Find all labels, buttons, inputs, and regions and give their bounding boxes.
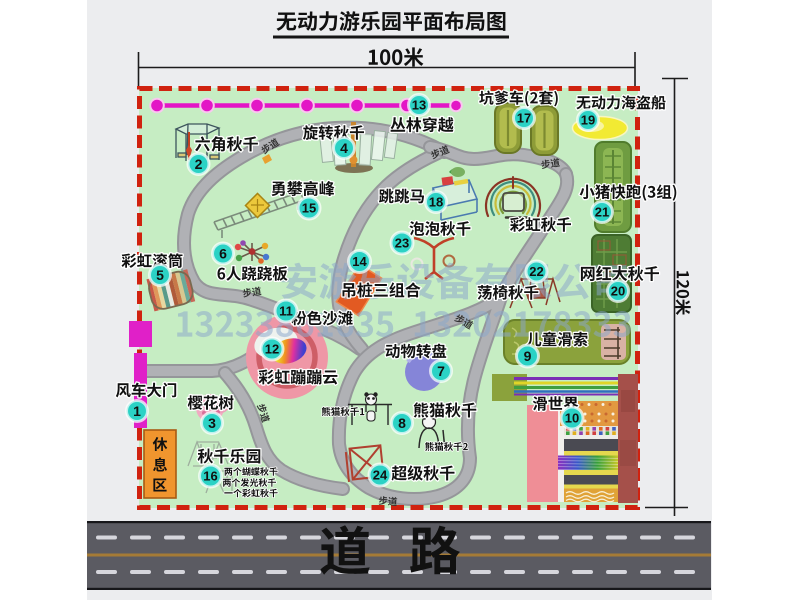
svg-text:5: 5 [156,267,164,283]
svg-text:19: 19 [581,113,595,128]
svg-text:21: 21 [595,205,609,220]
svg-text:8: 8 [398,415,406,431]
svg-text:13: 13 [412,98,426,113]
svg-text:2: 2 [195,156,203,172]
svg-text:7: 7 [437,363,445,379]
svg-text:16: 16 [203,469,217,484]
svg-text:4: 4 [340,140,348,156]
svg-text:10: 10 [565,411,579,426]
svg-text:23: 23 [395,236,409,251]
svg-text:18: 18 [429,195,443,210]
svg-text:22: 22 [529,264,543,279]
svg-text:20: 20 [611,284,625,299]
svg-text:11: 11 [279,304,293,319]
svg-text:12: 12 [265,342,279,357]
svg-text:17: 17 [517,111,531,126]
svg-text:14: 14 [352,254,367,269]
svg-text:9: 9 [524,348,532,364]
svg-text:3: 3 [208,415,216,431]
svg-text:24: 24 [373,468,388,483]
svg-text:15: 15 [302,201,316,216]
svg-text:1: 1 [133,403,141,419]
svg-text:6: 6 [219,246,227,262]
